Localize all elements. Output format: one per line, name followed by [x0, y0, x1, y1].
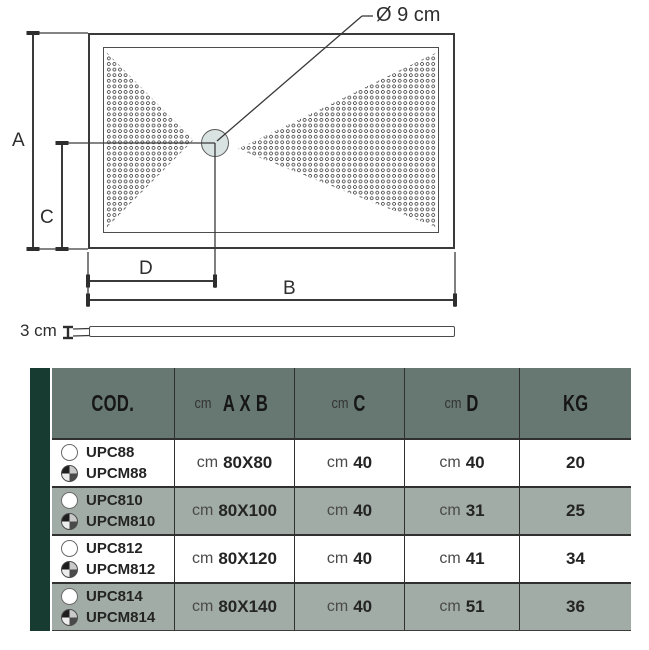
product-code: UPC814: [86, 588, 143, 605]
header-axb: cm A X B: [175, 368, 295, 438]
header-kg: KG: [520, 368, 631, 438]
table-row: UPC812 UPCM812 cm 80X120 cm 40 cm 41: [52, 534, 631, 582]
page: Ø 9 cm A C D B 3 cm COD. cm A X B cm C: [0, 0, 649, 650]
d-cell: cm 31: [405, 488, 520, 534]
table-header-row: COD. cm A X B cm C cm D KG: [52, 368, 631, 438]
header-cod: COD.: [52, 368, 175, 438]
unit-label: cm: [192, 550, 213, 568]
c-value: 40: [353, 453, 372, 473]
unit-label: cm: [439, 454, 460, 472]
header-c-unit: cm: [332, 395, 349, 412]
dimension-label-d: D: [139, 259, 153, 278]
kg-cell: 25: [520, 488, 631, 534]
axb-value: 80X140: [218, 597, 277, 617]
drain-diameter-label: Ø 9 cm: [376, 5, 440, 25]
c-cell: cm 40: [295, 536, 405, 582]
spec-table-grid: COD. cm A X B cm C cm D KG: [52, 368, 631, 631]
circle-outline-icon: [61, 540, 78, 557]
kg-value: 20: [566, 453, 585, 473]
product-code: UPCM812: [86, 561, 155, 578]
c-cell: cm 40: [295, 488, 405, 534]
header-c: cm C: [295, 368, 405, 438]
side-view-bar: [89, 326, 455, 337]
axb-value: 80X80: [223, 453, 272, 473]
cod-cell: UPC810 UPCM810: [52, 488, 175, 534]
header-cod-label: COD.: [92, 390, 135, 417]
header-kg-label: KG: [563, 390, 589, 417]
table-row: UPC810 UPCM810 cm 80X100 cm 40 cm 31: [52, 486, 631, 534]
cod-cell: UPC812 UPCM812: [52, 536, 175, 582]
spec-table: COD. cm A X B cm C cm D KG: [30, 368, 631, 631]
d-cell: cm 41: [405, 536, 520, 582]
product-code: UPC812: [86, 540, 143, 557]
header-axb-label: A X B: [222, 390, 267, 417]
kg-value: 25: [566, 501, 585, 521]
d-value: 51: [466, 597, 485, 617]
thickness-label: 3 cm: [20, 322, 57, 339]
product-code: UPCM810: [86, 513, 155, 530]
d-value: 40: [466, 453, 485, 473]
unit-label: cm: [327, 598, 348, 616]
circle-outline-icon: [61, 588, 78, 605]
header-d-unit: cm: [444, 395, 461, 412]
unit-label: cm: [439, 550, 460, 568]
dimension-lines: [0, 0, 649, 362]
unit-label: cm: [439, 502, 460, 520]
unit-label: cm: [327, 454, 348, 472]
c-cell: cm 40: [295, 584, 405, 630]
unit-label: cm: [327, 502, 348, 520]
c-value: 40: [353, 501, 372, 521]
header-d-label: D: [466, 390, 478, 417]
product-code: UPCM88: [86, 465, 147, 482]
accent-stripe: [30, 368, 50, 631]
d-cell: cm 40: [405, 440, 520, 486]
axb-cell: cm 80X100: [175, 488, 295, 534]
header-axb-unit: cm: [194, 395, 211, 412]
kg-cell: 36: [520, 584, 631, 630]
kg-value: 36: [566, 597, 585, 617]
d-cell: cm 51: [405, 584, 520, 630]
dimension-label-a: A: [12, 131, 25, 150]
header-d: cm D: [405, 368, 520, 438]
circle-outline-icon: [61, 444, 78, 461]
kg-cell: 34: [520, 536, 631, 582]
product-code: UPCM814: [86, 609, 155, 626]
product-code: UPC88: [86, 444, 134, 461]
dimension-label-b: B: [283, 279, 296, 298]
c-cell: cm 40: [295, 440, 405, 486]
c-value: 40: [353, 549, 372, 569]
product-code: UPC810: [86, 492, 143, 509]
kg-cell: 20: [520, 440, 631, 486]
circle-outline-icon: [61, 492, 78, 509]
unit-label: cm: [192, 502, 213, 520]
c-value: 40: [353, 597, 372, 617]
d-value: 41: [466, 549, 485, 569]
unit-label: cm: [197, 454, 218, 472]
axb-cell: cm 80X120: [175, 536, 295, 582]
cod-cell: UPC88 UPCM88: [52, 440, 175, 486]
unit-label: cm: [192, 598, 213, 616]
kg-value: 34: [566, 549, 585, 569]
d-value: 31: [466, 501, 485, 521]
marble-sphere-icon: [61, 513, 78, 530]
marble-sphere-icon: [61, 609, 78, 626]
axb-cell: cm 80X140: [175, 584, 295, 630]
axb-cell: cm 80X80: [175, 440, 295, 486]
marble-sphere-icon: [61, 465, 78, 482]
technical-drawing: Ø 9 cm A C D B 3 cm: [0, 0, 649, 362]
table-row: UPC814 UPCM814 cm 80X140 cm 40 cm 51: [52, 582, 631, 631]
axb-value: 80X100: [218, 501, 277, 521]
header-c-label: C: [354, 390, 366, 417]
unit-label: cm: [327, 550, 348, 568]
marble-sphere-icon: [61, 561, 78, 578]
cod-cell: UPC814 UPCM814: [52, 584, 175, 630]
table-row: UPC88 UPCM88 cm 80X80 cm 40 cm 40: [52, 438, 631, 486]
dimension-label-c: C: [40, 208, 54, 227]
axb-value: 80X120: [218, 549, 277, 569]
unit-label: cm: [439, 598, 460, 616]
